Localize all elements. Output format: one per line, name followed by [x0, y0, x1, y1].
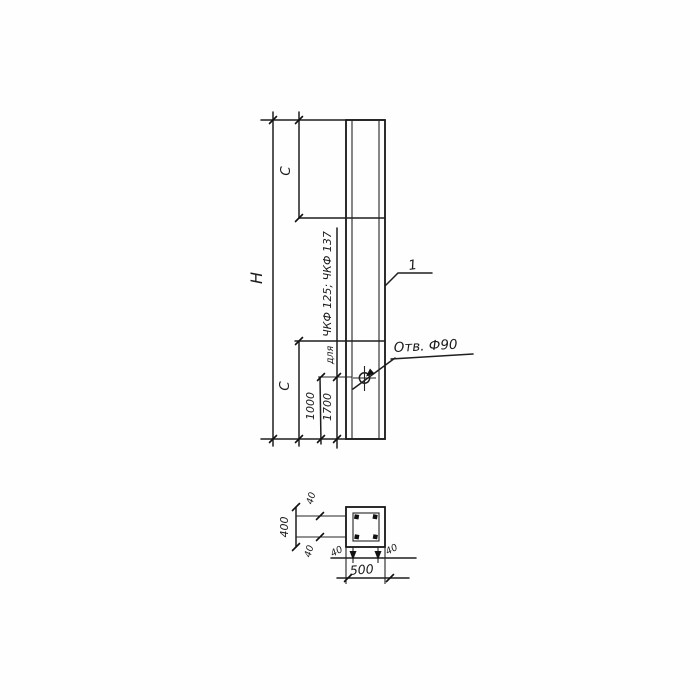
- section-width-label: 500: [349, 561, 374, 578]
- section-height-label: 400: [278, 517, 291, 538]
- hole-callout: Отв. Ф90: [353, 337, 473, 391]
- dim-label-1700: 1700: [321, 393, 334, 421]
- section-cover-right-label: 40: [384, 542, 400, 557]
- section-cover-left-label: 40: [329, 544, 345, 559]
- section-cover-bottom-label: 40: [303, 544, 317, 559]
- section-outline: [346, 507, 385, 547]
- note-for-label: для: [325, 346, 336, 366]
- elevation-view: H C C 1000 1700 для ЧКФ 125; ЧКФ 137: [247, 112, 473, 448]
- dim-label-1000: 1000: [304, 392, 317, 420]
- leader-arrowhead: [366, 369, 375, 377]
- note-marks-label: ЧКФ 125; ЧКФ 137: [321, 231, 334, 337]
- column-drawing: H C C 1000 1700 для ЧКФ 125; ЧКФ 137: [0, 0, 700, 700]
- item-mark-label: 1: [407, 257, 418, 274]
- drawing-sheet: H C C 1000 1700 для ЧКФ 125; ЧКФ 137: [0, 0, 700, 700]
- hole-note-label: Отв. Ф90: [393, 337, 458, 356]
- dim-label-c-top: C: [278, 166, 294, 176]
- section-cover-top-label: 40: [305, 491, 319, 506]
- dim-H: H: [247, 112, 273, 446]
- dim-C-bottom: C: [277, 341, 299, 446]
- dim-label-c-bottom: C: [277, 381, 293, 391]
- rebar-dots: [354, 514, 378, 539]
- dim-section-covers-bottom: 40 40: [329, 542, 416, 563]
- dim-label-H: H: [247, 272, 266, 284]
- dim-C-top: C: [278, 112, 299, 218]
- column-outline: [295, 120, 385, 439]
- item-mark-callout: 1: [386, 257, 432, 285]
- section-view: 400 40 40 40 40 500: [278, 491, 416, 584]
- dim-hole-offsets: 1000 1700 для ЧКФ 125; ЧКФ 137: [304, 228, 352, 448]
